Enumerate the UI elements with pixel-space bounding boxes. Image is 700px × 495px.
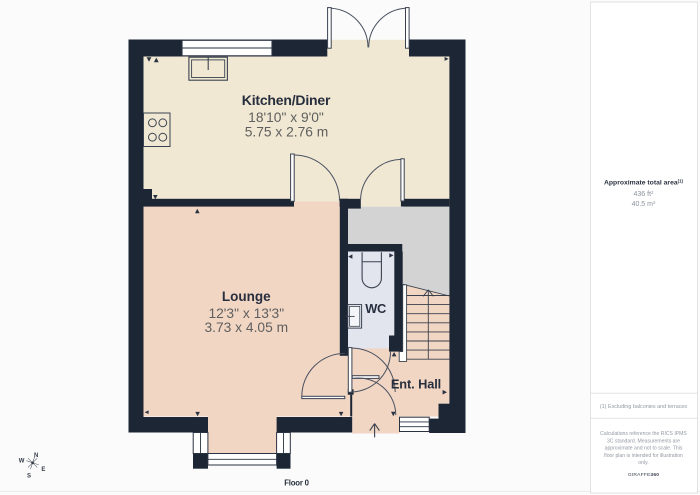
svg-text:Floor 0: Floor 0 (284, 479, 309, 488)
svg-text:WC: WC (365, 301, 386, 316)
svg-text:Calculations reference the RIC: Calculations reference the RICS IPMS (600, 431, 687, 437)
svg-text:S: S (27, 473, 31, 479)
svg-text:E: E (41, 467, 45, 473)
svg-text:436 ft2: 436 ft2 (634, 190, 655, 198)
svg-text:only.: only. (638, 460, 648, 466)
svg-text:Kitchen/Diner: Kitchen/Diner (242, 92, 331, 108)
svg-text:18'10" x 9'0": 18'10" x 9'0" (248, 110, 324, 125)
svg-text:5.75 x 2.76 m: 5.75 x 2.76 m (245, 125, 329, 140)
svg-text:N: N (34, 453, 38, 459)
svg-text:GIRAFFE360: GIRAFFE360 (628, 472, 659, 478)
svg-text:3C standard. Measurements are: 3C standard. Measurements are (607, 438, 680, 444)
svg-text:3.73 x 4.05 m: 3.73 x 4.05 m (204, 320, 288, 335)
svg-text:approximate and not to scale.: approximate and not to scale. This (605, 446, 683, 452)
svg-text:W: W (19, 458, 25, 464)
svg-text:Approximate total area(1): Approximate total area(1) (604, 178, 684, 186)
svg-text:Ent. Hall: Ent. Hall (391, 377, 441, 392)
svg-text:40.5 m2: 40.5 m2 (632, 200, 656, 208)
svg-text:12'3" x 13'3": 12'3" x 13'3" (208, 306, 284, 321)
svg-text:Lounge: Lounge (222, 289, 271, 304)
svg-text:floor plan is intended for ill: floor plan is intended for illustration (604, 453, 683, 459)
svg-text:(1) Excluding balconies and te: (1) Excluding balconies and terraces (600, 404, 687, 410)
